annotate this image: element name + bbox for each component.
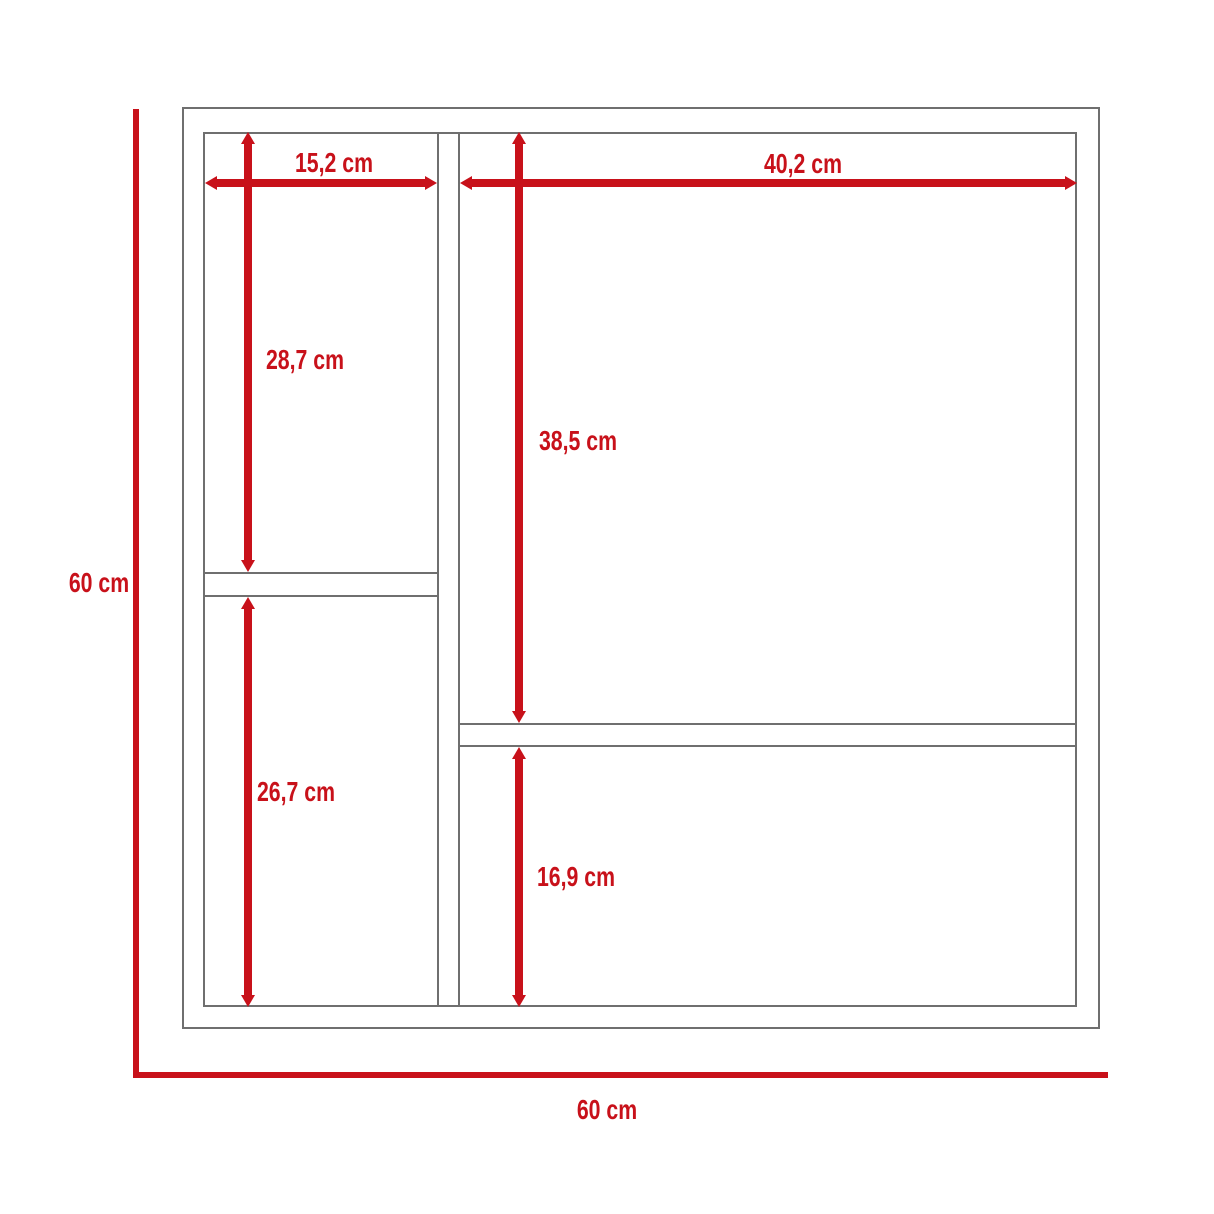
arrow-shaft	[469, 179, 1068, 187]
arrowhead-down-icon	[512, 711, 526, 723]
cabinet-inner-frame	[203, 132, 1077, 1007]
right-lower-height-arrow	[512, 747, 526, 1007]
arrowhead-right-icon	[1065, 176, 1077, 190]
overall-width-label: 60 cm	[577, 1094, 637, 1126]
right-lower-height-label: 16,9 cm	[537, 861, 615, 893]
left-upper-height-arrow	[241, 132, 255, 572]
arrow-shaft	[515, 756, 523, 998]
right-upper-height-arrow	[512, 132, 526, 723]
arrowhead-down-icon	[512, 995, 526, 1007]
left-column-shelf	[203, 572, 437, 597]
left-upper-height-label: 28,7 cm	[266, 344, 344, 376]
right-column-width-label: 40,2 cm	[764, 148, 842, 180]
arrow-shaft	[244, 606, 252, 998]
left-lower-height-label: 26,7 cm	[257, 776, 335, 808]
right-column-shelf	[460, 723, 1077, 747]
right-upper-height-label: 38,5 cm	[539, 425, 617, 457]
arrow-shaft	[515, 141, 523, 714]
center-divider-panel	[437, 132, 460, 1007]
arrowhead-right-icon	[425, 176, 437, 190]
left-column-width-label: 15,2 cm	[295, 147, 373, 179]
left-lower-height-arrow	[241, 597, 255, 1007]
arrowhead-down-icon	[241, 995, 255, 1007]
arrowhead-down-icon	[241, 560, 255, 572]
dimension-diagram: 15,2 cm 40,2 cm 28,7 cm 38,5 cm 26,7 cm …	[0, 0, 1214, 1214]
overall-height-label: 60 cm	[69, 567, 129, 599]
arrow-shaft	[244, 141, 252, 563]
